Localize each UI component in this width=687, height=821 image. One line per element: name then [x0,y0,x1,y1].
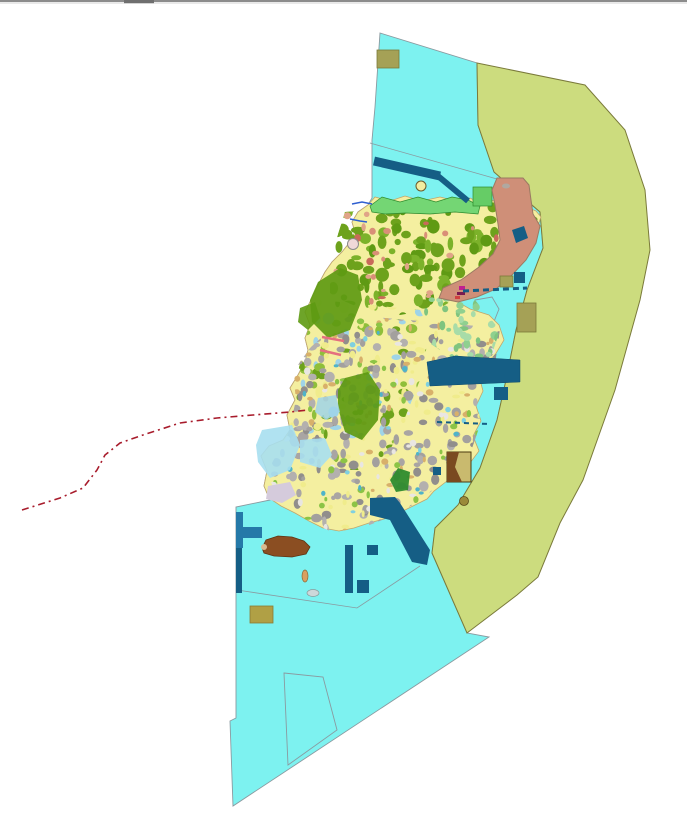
speckle-dot [448,347,455,352]
speckle-dot [273,407,281,418]
speckle-dot [319,387,323,390]
speckle-dot [321,202,335,213]
speckle-dot [306,427,312,431]
speckle-dot [459,255,466,267]
speckle-dot [372,251,379,256]
speckle-dot [360,462,364,468]
khaki-plot-east-small [500,276,513,287]
speckle-dot [404,430,413,436]
speckle-dot [349,206,357,211]
speckle-dot [476,337,481,344]
speckle-dot [419,420,427,426]
speckle-dot [358,485,361,491]
speckle-dot [294,418,299,426]
speckle-dot [306,352,312,356]
speckle-dot [278,325,285,333]
speckle-dot [331,496,335,500]
dark-yellow-plot-bottom [250,606,273,623]
speckle-dot [304,358,312,366]
speckle-dot [445,407,451,412]
speckle-dot [369,228,376,235]
speckle-dot [390,382,396,387]
speckle-dot [266,379,272,384]
speckle-dot [374,290,379,300]
brown-port-tan-tip [261,544,267,550]
speckle-dot [285,348,292,355]
speckle-dot [467,352,473,357]
speckle-dot [331,204,337,207]
speckle-dot [443,424,448,433]
speckle-dot [296,338,305,345]
speckle-dot [293,312,300,320]
window-top-border-shadow [0,3,687,4]
speckle-dot [484,216,497,224]
speckle-dot [371,274,376,280]
speckle-dot [295,359,301,362]
speckle-dot [473,398,478,406]
speckle-dot [346,491,350,498]
speckle-dot [419,481,429,491]
islet-gray-south [307,590,319,597]
speckle-dot [426,382,430,387]
speckle-dot [328,466,334,473]
speckle-dot [367,491,370,498]
speckle-dot [342,525,350,529]
speckle-dot [415,400,419,408]
speckle-dot [439,321,445,331]
speckle-dot [426,389,434,395]
speckle-dot [426,290,433,295]
speckle-dot [351,510,356,513]
speckle-dot [429,297,435,302]
map-canvas[interactable] [0,0,687,821]
speckle-dot [418,448,422,454]
speckle-dot [414,294,423,306]
speckle-dot [410,274,420,287]
speckle-dot [365,275,371,279]
speckle-dot [384,454,389,458]
speckle-dot [494,234,499,242]
speckle-dot [324,353,329,359]
speckle-dot [304,517,311,520]
speckle-dot [424,410,431,415]
speckle-dot [450,424,457,430]
blue-stream-nw-upper [352,202,372,204]
navy-plot-se-tiny [433,467,441,475]
speckle-dot [351,261,364,270]
speckle-dot [319,368,326,373]
speckle-dot [321,429,324,434]
speckle-dot [376,474,379,479]
speckle-dot [424,232,427,239]
speckle-dot [446,253,453,259]
speckle-dot [384,389,388,393]
window-top-handle [124,0,154,3]
speckle-dot [272,369,276,375]
speckle-dot [382,366,386,371]
speckle-dot [292,346,299,350]
speckle-dot [400,381,407,387]
speckle-dot [458,316,464,323]
speckle-dot [369,298,374,305]
speckle-dot [381,417,386,427]
speckle-dot [416,452,419,456]
speckle-dot [331,450,338,460]
speckle-dot [383,228,391,234]
speckle-dot [352,501,358,507]
speckle-dot [386,426,391,430]
speckle-dot [403,362,410,366]
speckle-dot [405,263,409,270]
speckle-dot [364,212,370,217]
speckle-dot [429,398,439,403]
speckle-dot [467,410,471,417]
speckle-dot [308,406,312,412]
speckle-dot [294,376,300,382]
speckle-dot [375,326,383,336]
speckle-dot [434,402,443,410]
speckle-dot [381,458,388,464]
speckle-dot [286,347,291,350]
speckle-dot [286,337,294,343]
navy-square-south-upper [367,545,378,555]
speckle-dot [471,311,476,317]
speckle-dot [418,348,425,354]
speckle-dot [298,499,303,507]
speckle-dot [439,339,444,344]
speckle-dot [321,342,329,349]
speckle-dot [291,329,300,337]
speckle-dot [406,444,411,447]
speckle-dot [343,499,347,505]
speckle-dot [357,318,364,324]
speckle-dot [392,354,401,360]
speckle-dot [290,349,295,359]
speckle-dot [273,418,282,423]
landmark-circle-north [416,181,426,191]
speckle-dot [409,378,415,385]
speckle-dot [395,239,401,245]
speckle-dot [323,384,328,390]
speckle-dot [337,347,345,353]
speckle-dot [471,226,474,230]
speckle-dot [277,370,284,381]
speckle-dot [289,472,297,482]
speckle-dot [381,257,385,262]
speckle-dot [354,332,360,339]
speckle-dot [452,395,460,399]
speckle-dot [394,434,400,445]
speckle-dot [371,489,375,492]
speckle-dot [414,357,422,362]
speckle-dot [389,248,396,254]
speckle-dot [424,265,432,274]
speckle-dot [271,312,282,322]
speckle-dot [395,342,403,346]
speckle-dot [373,365,381,373]
islet-tan-south [302,570,308,582]
speckle-dot [340,449,346,459]
speckle-dot [359,356,363,363]
speckle-dot [265,391,273,401]
speckle-dot [370,360,377,363]
speckle-dot [328,382,336,386]
speckle-dot [368,327,372,330]
speckle-dot [456,343,462,349]
speckle-dot [306,381,314,388]
speckle-dot [324,372,335,383]
speckle-dot [419,491,424,494]
speckle-dot [331,225,344,237]
navy-port-band-east [427,356,520,386]
speckle-dot [300,342,305,346]
speckle-dot [469,243,479,255]
speckle-dot [427,258,434,265]
speckle-dot [442,258,455,272]
speckle-dot [351,255,361,260]
speckle-dot [401,418,405,423]
speckle-dot [431,474,439,485]
speckle-dot [311,514,322,523]
speckle-dot [392,449,396,454]
speckle-dot [410,370,414,373]
navy-pier-T-arm [243,527,262,538]
speckle-dot [342,334,349,344]
speckle-dot [424,439,431,449]
speckle-dot [382,302,394,307]
speckle-dot [288,397,294,402]
speckle-dot [304,367,311,375]
speckle-dot [332,416,338,426]
speckle-dot [361,223,365,231]
speckle-dot [318,355,324,363]
speckle-dot [414,463,421,468]
speckle-dot [321,491,325,496]
speckle-dot [288,354,293,359]
speckle-dot [378,236,387,249]
speckle-dot [440,450,443,455]
speckle-dot [407,412,410,416]
speckle-dot [428,456,438,465]
speckle-dot [425,240,432,253]
speckle-dot [301,482,307,487]
speckle-dot [284,393,289,397]
speckle-dot [335,379,339,385]
speckle-dot [379,451,384,457]
speckle-dot [323,422,334,428]
speckle-dot [266,380,271,383]
speckle-dot [310,422,314,425]
speckle-dot [401,351,406,359]
speckle-dot [418,258,425,270]
speckle-dot [486,342,489,345]
speckle-dot [408,341,416,345]
speckle-dot [354,479,360,484]
speckle-dot [319,503,325,509]
speckle-dot [359,452,365,456]
navy-square-south-left [357,580,369,593]
speckle-dot [345,470,350,474]
speckle-dot [402,366,408,372]
speckle-dot [455,267,465,278]
speckle-dot [379,392,382,397]
green-plot-northeast [473,187,492,206]
navy-bar-south [345,545,353,593]
speckle-dot [280,363,287,369]
speckle-dot [375,268,389,282]
speckle-dot [446,328,451,332]
speckle-dot [269,374,278,380]
speckle-dot [387,405,391,412]
speckle-dot [392,223,401,233]
speckle-dot [334,364,339,367]
speckle-dot [268,328,278,335]
speckle-dot [394,367,400,375]
speckle-dot [394,462,400,468]
speckle-dot [363,266,374,274]
navy-plot-east-small [514,272,525,283]
speckle-dot [379,440,386,449]
speckle-dot [366,450,373,455]
speckle-dot [276,320,280,325]
speckle-dot [296,489,301,497]
speckle-dot [453,432,459,436]
speckle-dot [434,331,438,339]
speckle-dot [357,346,362,352]
speckle-dot [463,333,472,341]
speckle-dot [303,391,307,397]
speckle-dot [266,325,276,333]
khaki-plot-top [377,50,399,68]
speckle-dot [324,497,327,501]
speckle-dot [417,391,424,396]
speckle-dot [301,476,305,480]
navy-edge-strip-southwest [236,548,242,593]
speckle-dot [380,408,385,413]
speckle-dot [291,335,295,345]
speckle-dot [454,327,463,335]
speckle-dot [423,457,426,463]
speckle-dot [360,233,371,244]
speckle-dot [267,357,273,360]
speckle-dot [356,471,362,477]
speckle-dot [287,350,291,353]
speckle-dot [285,324,291,332]
speckle-dot [413,468,421,477]
speckle-dot [464,393,470,396]
speckle-dot [265,361,275,368]
speckle-dot [328,505,333,509]
speckle-dot [381,289,386,292]
magenta-harbor-mark-1 [459,286,465,290]
speckle-dot [413,496,418,503]
speckle-dot [423,222,429,226]
speckle-dot [439,412,444,417]
speckle-dot [442,306,448,313]
speckle-dot [366,258,374,266]
speckle-dot [344,212,351,219]
speckle-dot [397,334,402,339]
speckle-dot [362,510,365,517]
speckle-dot [386,488,390,494]
speckle-dot [299,466,306,470]
speckle-dot [350,351,356,359]
speckle-dot [274,318,281,326]
speckle-dot [401,397,406,404]
speckle-dot [265,327,269,332]
speckle-dot [349,461,359,470]
speckle-dot [307,397,313,401]
speckle-dot [448,237,454,250]
speckle-dot [344,359,350,366]
speckle-dot [377,331,380,335]
speckle-dot [314,423,322,430]
landmark-circle-northwest [348,239,359,250]
speckle-dot [441,456,445,460]
speckle-dot [364,279,369,293]
speckle-dot [459,391,465,394]
speckle-dot [372,457,380,467]
speckle-dot [456,309,466,314]
speckle-dot [378,296,386,299]
speckle-dot [376,214,388,224]
speckle-dot [486,352,492,357]
speckle-dot [389,284,399,295]
speckle-dot [373,343,381,351]
speckle-dot [272,415,278,420]
speckle-dot [462,435,471,443]
salmon-zone-gray-mark [502,184,510,189]
speckle-dot [401,231,411,239]
speckle-dot [401,252,412,265]
speckle-dot [448,441,458,447]
olive-dot-southeast [460,497,469,506]
khaki-plot-east-large [517,303,536,332]
speckle-dot [336,241,343,253]
speckle-dot [480,235,492,247]
speckle-dot [340,458,347,463]
navy-port-block-east-small [494,387,508,400]
speckle-dot [363,336,367,342]
navy-pier-T-vertical [236,512,243,548]
window-top-border-line [0,0,687,2]
speckle-dot [431,243,444,257]
speckle-dot [409,324,412,332]
speckle-dot [442,231,448,237]
speckle-dot [376,323,383,328]
speckle-dot [455,411,459,416]
map-viewport[interactable] [0,0,687,821]
speckle-dot [415,487,420,491]
speckle-dot [308,374,317,381]
speckle-dot [424,308,428,316]
speckle-dot [406,351,416,358]
speckle-dot [458,339,464,342]
speckle-dot [286,328,292,333]
speckle-dot [350,342,356,347]
speckle-dot [456,302,463,309]
red-harbor-mark [455,296,460,299]
